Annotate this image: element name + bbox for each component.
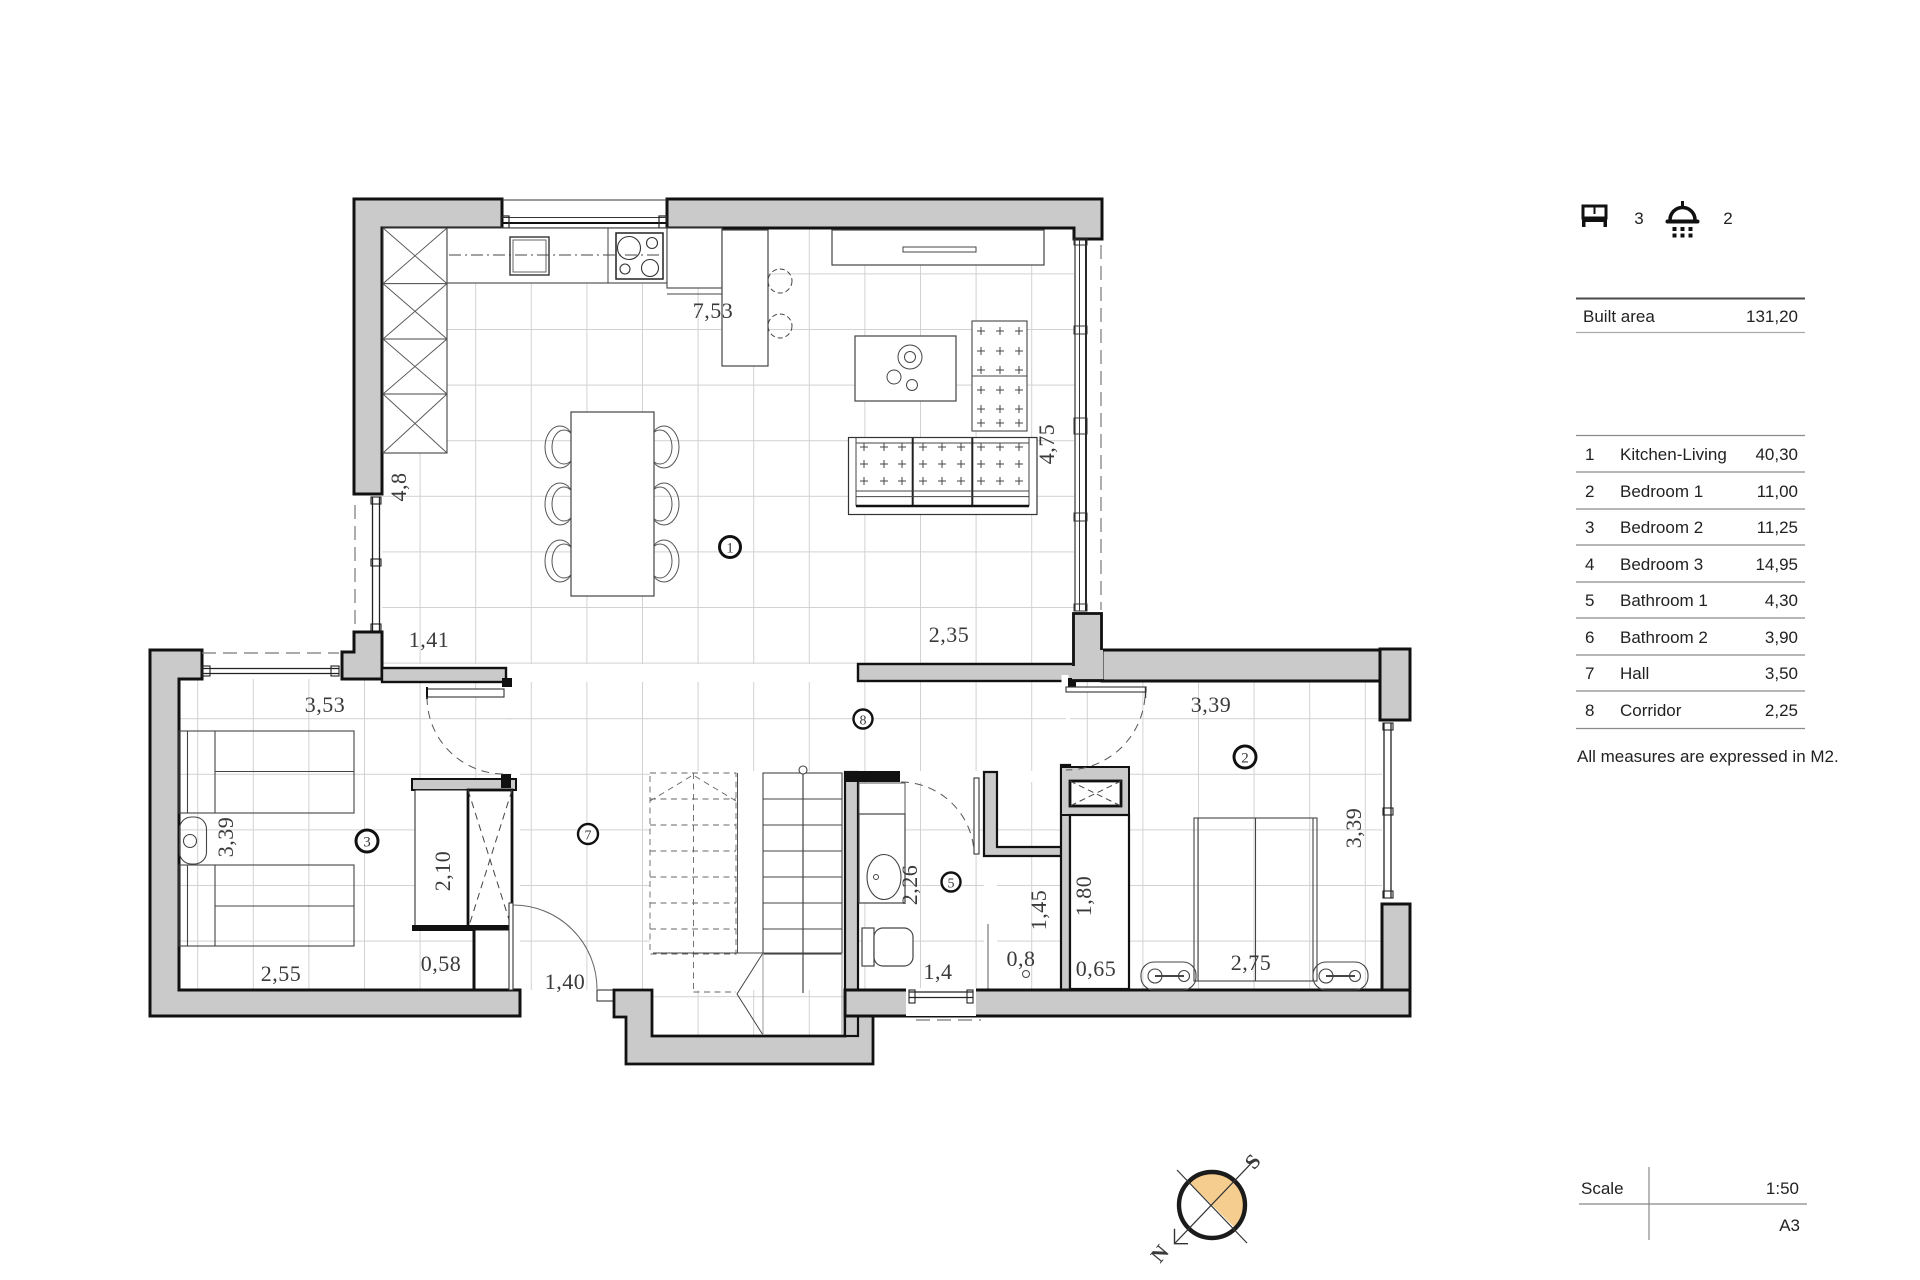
svg-text:2,10: 2,10 [430, 851, 455, 892]
svg-text:3: 3 [1585, 518, 1594, 537]
svg-text:131,20: 131,20 [1746, 307, 1798, 326]
svg-text:Bedroom 2: Bedroom 2 [1620, 518, 1703, 537]
svg-text:5: 5 [1585, 591, 1594, 610]
svg-text:7: 7 [1585, 664, 1594, 683]
svg-text:Kitchen-Living: Kitchen-Living [1620, 445, 1727, 464]
svg-text:Scale: Scale [1581, 1179, 1624, 1198]
svg-text:1,41: 1,41 [409, 627, 450, 652]
svg-text:2,26: 2,26 [897, 865, 922, 906]
svg-text:3,39: 3,39 [1191, 692, 1232, 717]
svg-text:8: 8 [1585, 701, 1594, 720]
svg-text:1,45: 1,45 [1026, 890, 1051, 931]
svg-text:2: 2 [1241, 751, 1249, 767]
svg-text:Corridor: Corridor [1620, 701, 1682, 720]
svg-text:5: 5 [948, 877, 955, 892]
svg-text:2,25: 2,25 [1765, 701, 1798, 720]
svg-text:0,8: 0,8 [1007, 946, 1036, 971]
svg-text:14,95: 14,95 [1755, 555, 1798, 574]
svg-text:3,90: 3,90 [1765, 628, 1798, 647]
svg-text:6: 6 [1585, 628, 1594, 647]
svg-text:4: 4 [1585, 555, 1594, 574]
svg-text:0,58: 0,58 [421, 951, 462, 976]
svg-text:7: 7 [585, 829, 592, 844]
svg-text:S: S [1240, 1149, 1266, 1173]
svg-text:1: 1 [1585, 445, 1594, 464]
svg-text:Built area: Built area [1583, 307, 1655, 326]
svg-text:N: N [1146, 1240, 1174, 1267]
svg-text:Bedroom 1: Bedroom 1 [1620, 482, 1703, 501]
svg-text:2,35: 2,35 [929, 622, 970, 647]
svg-text:2,75: 2,75 [1231, 950, 1272, 975]
svg-text:3,39: 3,39 [213, 817, 238, 858]
svg-text:11,25: 11,25 [1757, 518, 1798, 537]
svg-text:Bathroom 1: Bathroom 1 [1620, 591, 1708, 610]
svg-text:A3: A3 [1779, 1216, 1800, 1235]
svg-text:Bathroom 2: Bathroom 2 [1620, 628, 1708, 647]
svg-text:4,30: 4,30 [1765, 591, 1798, 610]
svg-text:1,4: 1,4 [924, 959, 953, 984]
svg-text:3,39: 3,39 [1341, 808, 1366, 849]
svg-text:1,40: 1,40 [545, 969, 586, 994]
svg-text:3: 3 [1634, 209, 1643, 228]
svg-text:1:50: 1:50 [1766, 1179, 1799, 1198]
svg-text:1: 1 [726, 541, 734, 557]
svg-text:40,30: 40,30 [1755, 445, 1798, 464]
svg-text:4,8: 4,8 [386, 473, 411, 502]
svg-text:3,53: 3,53 [305, 692, 346, 717]
svg-text:0,65: 0,65 [1076, 956, 1117, 981]
svg-text:8: 8 [860, 714, 867, 729]
svg-text:2: 2 [1723, 209, 1732, 228]
svg-text:Bedroom 3: Bedroom 3 [1620, 555, 1703, 574]
svg-text:4,75: 4,75 [1034, 424, 1059, 465]
svg-text:2: 2 [1585, 482, 1594, 501]
svg-text:Hall: Hall [1620, 664, 1649, 683]
svg-text:All measures are expressed in: All measures are expressed in M2. [1577, 747, 1839, 766]
svg-text:3,50: 3,50 [1765, 664, 1798, 683]
svg-text:2,55: 2,55 [261, 961, 302, 986]
svg-text:3: 3 [363, 835, 371, 851]
svg-text:7,53: 7,53 [693, 298, 734, 323]
svg-text:1,80: 1,80 [1071, 876, 1096, 917]
svg-text:11,00: 11,00 [1757, 482, 1798, 501]
